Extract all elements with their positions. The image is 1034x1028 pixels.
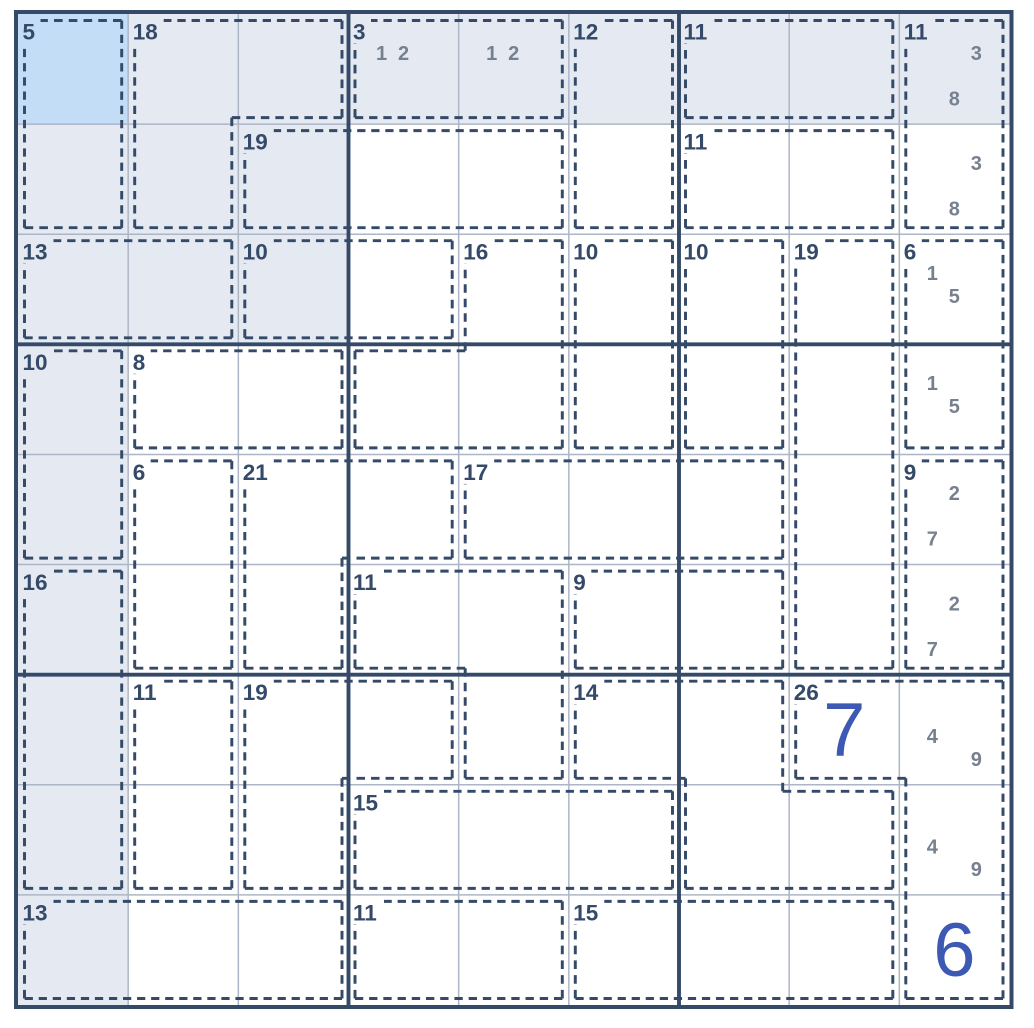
- svg-text:8: 8: [133, 350, 146, 375]
- svg-text:18: 18: [133, 20, 158, 45]
- svg-text:4: 4: [927, 836, 939, 858]
- svg-text:11: 11: [353, 900, 377, 925]
- svg-text:6: 6: [933, 908, 975, 993]
- svg-text:11: 11: [133, 680, 157, 705]
- svg-text:7: 7: [927, 529, 938, 551]
- svg-text:6: 6: [133, 460, 146, 485]
- svg-text:21: 21: [243, 460, 268, 485]
- svg-text:2: 2: [508, 43, 519, 65]
- svg-text:16: 16: [23, 570, 48, 595]
- svg-text:13: 13: [23, 240, 48, 265]
- svg-text:16: 16: [463, 240, 488, 265]
- svg-text:8: 8: [949, 88, 960, 110]
- svg-text:15: 15: [573, 900, 598, 925]
- svg-text:19: 19: [243, 680, 268, 705]
- svg-text:3: 3: [971, 153, 982, 175]
- svg-text:19: 19: [243, 130, 268, 155]
- svg-text:10: 10: [684, 240, 709, 265]
- svg-text:4: 4: [927, 726, 939, 748]
- svg-text:2: 2: [949, 593, 960, 615]
- svg-text:7: 7: [927, 639, 938, 661]
- svg-text:10: 10: [243, 240, 268, 265]
- svg-text:3: 3: [353, 20, 366, 45]
- svg-text:1: 1: [486, 43, 497, 65]
- svg-text:11: 11: [904, 20, 928, 45]
- svg-text:3: 3: [971, 43, 982, 65]
- svg-text:15: 15: [353, 790, 378, 815]
- svg-text:11: 11: [684, 20, 708, 45]
- svg-text:9: 9: [971, 749, 982, 771]
- svg-text:8: 8: [949, 198, 960, 220]
- svg-text:5: 5: [949, 286, 960, 308]
- svg-text:17: 17: [463, 460, 488, 485]
- svg-text:14: 14: [573, 680, 599, 705]
- svg-text:10: 10: [23, 350, 48, 375]
- svg-text:9: 9: [904, 460, 917, 485]
- svg-text:6: 6: [904, 240, 917, 265]
- svg-text:26: 26: [794, 680, 819, 705]
- svg-text:2: 2: [398, 43, 409, 65]
- svg-text:10: 10: [573, 240, 598, 265]
- svg-text:12: 12: [573, 20, 598, 45]
- svg-text:5: 5: [949, 396, 960, 418]
- svg-text:11: 11: [684, 130, 708, 155]
- svg-text:1: 1: [376, 43, 387, 65]
- svg-text:7: 7: [823, 688, 865, 773]
- svg-text:9: 9: [971, 859, 982, 881]
- svg-text:2: 2: [949, 483, 960, 505]
- svg-text:13: 13: [23, 900, 48, 925]
- svg-text:9: 9: [573, 570, 586, 595]
- svg-text:5: 5: [23, 20, 36, 45]
- svg-text:1: 1: [927, 263, 938, 285]
- svg-text:1: 1: [927, 373, 938, 395]
- svg-text:19: 19: [794, 240, 819, 265]
- svg-text:11: 11: [353, 570, 377, 595]
